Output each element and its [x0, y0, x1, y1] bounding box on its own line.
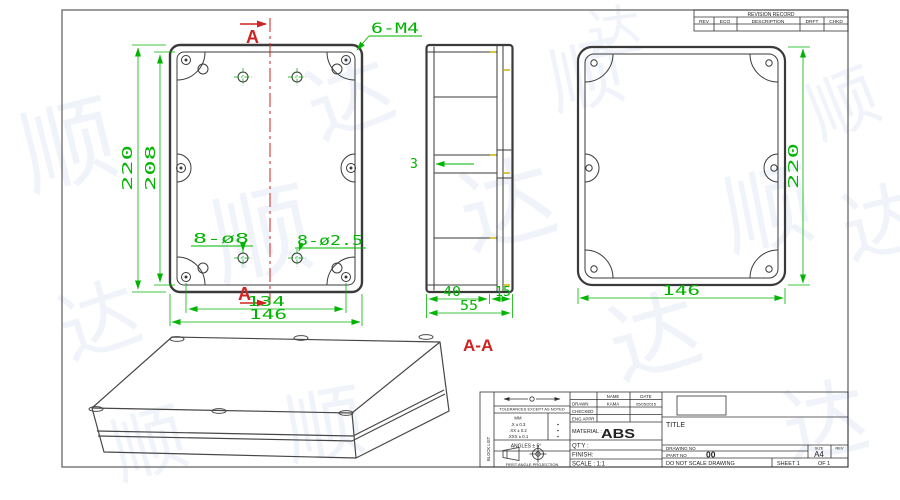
rev-label: REV: [835, 446, 844, 451]
thread-callout: 6-M4: [371, 21, 419, 37]
revision-table: REVISION RECORD REV ECO DESCRIPTION DRFT…: [694, 10, 848, 31]
row-eng-appr-label: ENG APPR: [572, 417, 594, 422]
section-label-a-top: A: [246, 27, 259, 47]
tol-row3: .XXX ± 0.1: [508, 434, 529, 439]
revision-col-description: DESCRIPTION: [752, 19, 785, 25]
watermark-glyph: 顺: [277, 373, 372, 478]
watermark-glyph: 达: [447, 141, 567, 272]
watermark-glyph: 达: [47, 265, 152, 378]
qty-label: QT'Y :: [572, 444, 589, 450]
large-hole-callout: 8-ø8: [193, 232, 249, 247]
row-drawn-label: DRAWN: [572, 402, 588, 407]
dimension-symbol: [504, 397, 560, 401]
cad-drawing-page: 顺 达 顺 达 顺 达 顺 达 达 顺 顺 达 达 顺: [0, 0, 900, 500]
revision-table-title: REVISION RECORD: [748, 12, 795, 18]
drawing-no-label: DRAWING NO: [666, 446, 696, 451]
dim-55: 55: [460, 299, 478, 314]
section-view-title: A-A: [463, 336, 493, 355]
title-label: TITLE: [666, 422, 685, 429]
material-label: MATERIAL :: [572, 429, 602, 435]
watermark-glyph: 达: [832, 169, 900, 279]
dim-146-lid: 146: [662, 284, 700, 299]
do-not-scale-note: DO NOT SCALE DRAWING: [666, 461, 735, 467]
dim-208: 208: [144, 145, 159, 191]
col-name-header: NAME: [607, 394, 620, 399]
material-value: ABS: [601, 426, 635, 441]
dim-220-lid: 220: [787, 143, 802, 189]
small-hole-callout: 8-ø2.5: [297, 234, 363, 249]
watermark-glyph: 达: [293, 38, 407, 160]
scale-label: SCALE : 1:1: [572, 461, 606, 467]
corner-lug: [177, 257, 205, 285]
tol-row1: .X ± 0.3: [511, 422, 526, 427]
dim-40: 40: [443, 285, 461, 300]
side-lug: [177, 154, 191, 182]
sheet-label: SHEET 1: [777, 461, 800, 467]
of-label: OF 1: [818, 461, 830, 467]
projection-caption: FIRST ANGLE PROJECTION: [506, 462, 559, 467]
watermark-glyph: 顺: [714, 151, 822, 271]
revision-col-rev: REV: [699, 19, 710, 25]
part-no-label: /PART NO: [666, 453, 687, 458]
watermark: 顺 达 顺 达 顺 达 顺 达 达 顺 顺 达 达 顺: [9, 0, 900, 497]
tolerances-header: TOLERANCES EXCEPT AS NOTED: [499, 407, 565, 412]
col-date-header: DATE: [640, 394, 651, 399]
revision-col-chkd: CHKD: [829, 19, 843, 25]
tol-unit: MM: [514, 416, 522, 421]
finish-label: FINISH:: [572, 453, 594, 459]
watermark-glyph: 顺: [101, 392, 197, 497]
side-lug: [341, 154, 355, 182]
dim-146-bottom: 146: [249, 308, 287, 323]
dimensions-side-view: 40 15 55: [427, 285, 513, 318]
dim-15: 15: [495, 285, 511, 300]
revision-col-eco: ECO: [720, 19, 731, 25]
drawing-canvas: 顺 达 顺 达 顺 达 顺 达 达 顺 顺 达 达 顺: [0, 0, 900, 500]
revision-col-drft: DRFT: [806, 19, 819, 25]
logo-box: [677, 396, 726, 415]
watermark-glyph: 顺: [9, 83, 128, 213]
dim-220-left: 220: [121, 145, 136, 191]
part-no-value: 00: [706, 450, 716, 460]
drawn-date: 05/05/2015: [636, 402, 657, 407]
row-checked-label: CHECKED: [572, 409, 593, 414]
size-value: A4: [814, 450, 824, 459]
dim-3-wall: 3: [410, 157, 418, 172]
drawn-name: KAMA: [607, 402, 620, 407]
corner-lug: [177, 52, 205, 80]
title-block-side-label: BLOCK LIST: [486, 436, 491, 461]
tol-row2: .XX ± 0.2: [509, 428, 527, 433]
watermark-glyph: 顺: [796, 54, 892, 156]
